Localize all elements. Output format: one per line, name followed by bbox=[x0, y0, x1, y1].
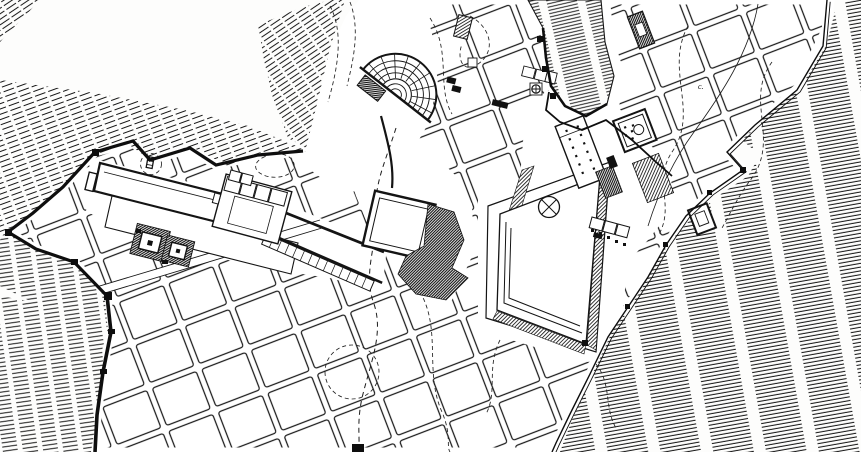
gate-tower bbox=[530, 83, 542, 95]
city-plan-map: c. bbox=[0, 0, 861, 452]
quadrant-rotunda bbox=[539, 197, 560, 218]
city-plan-canvas: c. bbox=[0, 0, 861, 452]
map-label-c: c. bbox=[698, 82, 704, 91]
